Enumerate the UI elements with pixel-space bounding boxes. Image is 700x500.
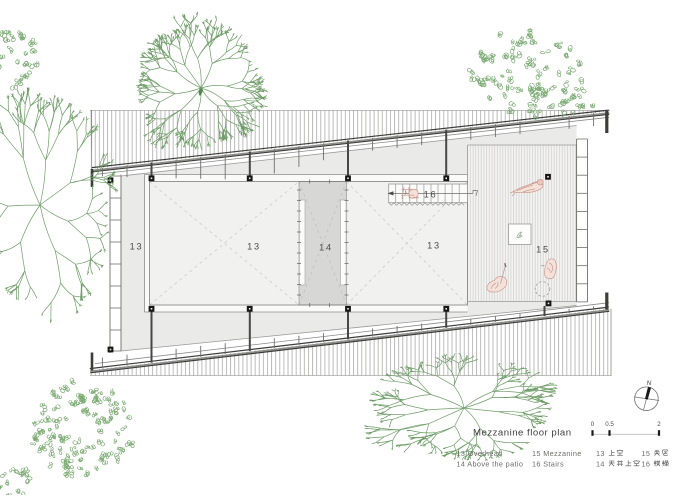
svg-text:15 Mezzanine: 15 Mezzanine [532, 449, 582, 458]
svg-text:14: 14 [596, 460, 605, 469]
svg-text:13: 13 [596, 449, 605, 458]
svg-text:14: 14 [319, 243, 333, 253]
svg-text:N: N [647, 380, 652, 387]
svg-text:15: 15 [642, 449, 651, 458]
svg-text:0: 0 [591, 421, 595, 428]
svg-text:13 Overhead: 13 Overhead [457, 449, 503, 458]
svg-text:0.5: 0.5 [605, 421, 614, 428]
svg-text:13: 13 [427, 241, 441, 251]
svg-text:14 Above the patio: 14 Above the patio [457, 460, 524, 469]
svg-text:16 Stairs: 16 Stairs [532, 460, 564, 469]
svg-text:2: 2 [657, 421, 661, 428]
svg-text:13: 13 [247, 242, 261, 252]
svg-text:15: 15 [536, 245, 550, 255]
svg-text:16: 16 [424, 190, 438, 200]
svg-text:16: 16 [642, 460, 651, 469]
svg-text:13: 13 [130, 242, 144, 252]
svg-text:Mezzanine floor plan: Mezzanine floor plan [473, 428, 572, 439]
